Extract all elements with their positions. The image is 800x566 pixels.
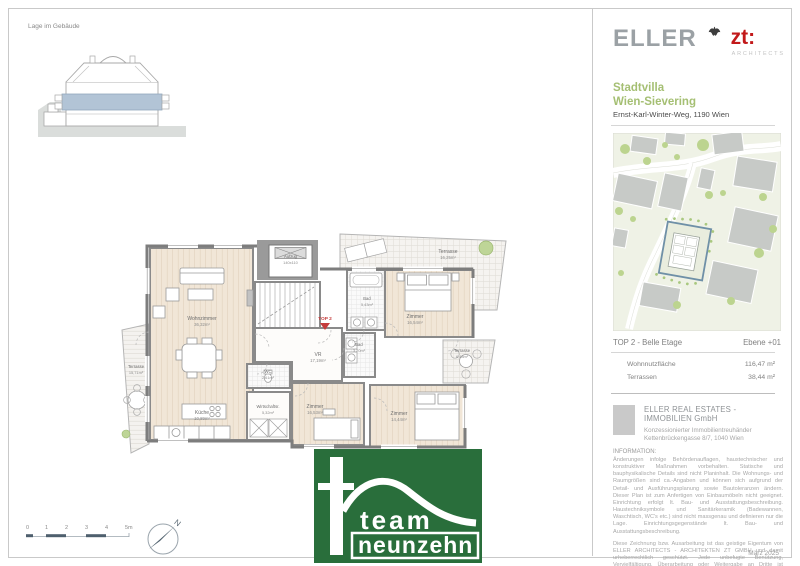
room-area-vr: 17,19m²: [310, 358, 326, 363]
level-caption: Ebene +01: [743, 338, 781, 347]
room-label-terrasse-se: Terrasse: [454, 348, 471, 353]
brand-name: ELLER: [613, 27, 697, 51]
scale-tick-1: 1: [45, 525, 48, 531]
unit-caption: TOP 2 - Belle Etage: [613, 338, 682, 347]
architect-logo: ELLER zt: ARCHITECTS: [613, 27, 755, 51]
double-bed-2: [415, 392, 459, 440]
scale-tick-4: 4: [105, 525, 108, 531]
area-label: Terrassen: [627, 374, 657, 381]
scale-tick-2: 2: [65, 525, 68, 531]
area-value: 116,47 m²: [745, 361, 775, 368]
location-in-building-label: Lage im Gebäude: [28, 23, 80, 30]
room-area-zimmer-2: 16,53m²: [307, 410, 323, 415]
legal-information: INFORMATION: Änderungen infolge Behörden…: [613, 449, 783, 566]
highlighted-floor: [62, 94, 162, 110]
room-area-terrasse-west: 15,71m²: [129, 370, 144, 375]
divider: [611, 393, 775, 394]
information-heading: INFORMATION:: [613, 449, 783, 455]
room-area-bad-1: 5,43m²: [361, 302, 374, 307]
room-area-terrasse-se: 6,48m²: [456, 354, 469, 359]
scale-tick-5m: 5m: [125, 525, 133, 531]
scale-tick-3: 3: [85, 525, 88, 531]
room-label-wc: WC: [265, 369, 272, 374]
area-row-living: Wohnnutzfläche 116,47 m²: [627, 361, 775, 368]
divider: [611, 125, 775, 126]
project-title: Stadtvilla Wien-Sievering: [613, 81, 696, 110]
room-label-terrasse-west: Terrasse: [128, 364, 145, 369]
elevator-label: Aufzug: [284, 254, 298, 259]
north-label: N: [172, 518, 182, 529]
site-map: [613, 133, 781, 331]
agency-line2: Kettenbrückengasse 8/7, 1040 Wien: [644, 435, 781, 443]
map-caption: TOP 2 - Belle Etage Ebene +01: [613, 338, 781, 347]
room-area-wohnzimmer: 36,32m²: [194, 322, 210, 327]
plant: [122, 430, 130, 438]
scale-tick-0: 0: [26, 525, 29, 531]
agency-line1: Konzessionierter Immobilientreuhänder: [644, 427, 781, 435]
room-label-bad-2: Bad: [355, 342, 363, 347]
divider: [611, 352, 775, 353]
room-area-kueche: 10,89m²: [194, 416, 210, 421]
double-bed: [397, 273, 459, 311]
info-panel: ELLER zt: ARCHITECTS Stadtvilla Wien-Sie…: [592, 9, 793, 556]
area-row-terraces: Terrassen 38,44 m²: [627, 374, 775, 381]
scale-bar: 0 1 2 3 4 5m: [26, 522, 146, 544]
project-title-line1: Stadtvilla: [613, 81, 696, 95]
room-area-zimmer-1: 16,54m²: [407, 320, 423, 325]
north-compass-icon: N: [140, 514, 188, 562]
building-section-drawing: [38, 38, 188, 150]
plan-date: März 2025: [748, 550, 779, 557]
eagle-icon: [707, 23, 722, 38]
information-paragraph-1: Änderungen infolge Behördenauflagen, hau…: [613, 457, 783, 536]
area-value: 38,44 m²: [748, 374, 775, 381]
project-title-line2: Wien-Sievering: [613, 95, 696, 109]
bathtub: [350, 273, 382, 287]
logo-text-neunzehn: neunzehn: [358, 532, 473, 558]
logo-t-stem: [330, 457, 343, 555]
room-area-wirtschaftsraum: 5,32m²: [262, 410, 275, 415]
project-address: Ernst-Karl-Winter-Weg, 1190 Wien: [613, 110, 729, 119]
terrace-south-east: [443, 340, 495, 383]
plan-sheet: Lage im Gebäude: [0, 0, 800, 566]
plant: [479, 241, 493, 255]
brand-suffix: zt:: [731, 26, 756, 49]
logo-t-bar: [318, 483, 354, 490]
floorplan: TOP 2 Wohnzimmer 36,32m² Küche 10,89m² T…: [118, 228, 588, 463]
area-label: Wohnnutzfläche: [627, 361, 676, 368]
room-label-wirtschaftsraum: Wirtschaftsr.: [256, 404, 279, 409]
room-area-terrasse-ne: 16,25m²: [440, 255, 456, 260]
brand-subtitle: ARCHITECTS: [732, 51, 785, 57]
agency-name: ELLER REAL ESTATES - IMMOBILIEN GmbH: [644, 405, 781, 423]
room-area-bad-2: 3,20m²: [353, 348, 366, 353]
agency-block: ELLER REAL ESTATES - IMMOBILIEN GmbH Kon…: [613, 405, 781, 444]
team-neunzehn-logo: team neunzehn: [314, 449, 482, 563]
unit-entry-label: TOP 2: [318, 316, 332, 322]
roof: [66, 63, 158, 82]
room-area-zimmer-3: 14,44m²: [391, 417, 407, 422]
agency-logo: [613, 405, 635, 435]
logo-text-team: team: [360, 505, 433, 535]
elevator-size-label: 140x110: [283, 260, 298, 265]
room-label-bad-1: Bad: [363, 296, 371, 301]
room-area-wc: 2,61m²: [262, 375, 275, 380]
roof-dome: [100, 57, 126, 64]
